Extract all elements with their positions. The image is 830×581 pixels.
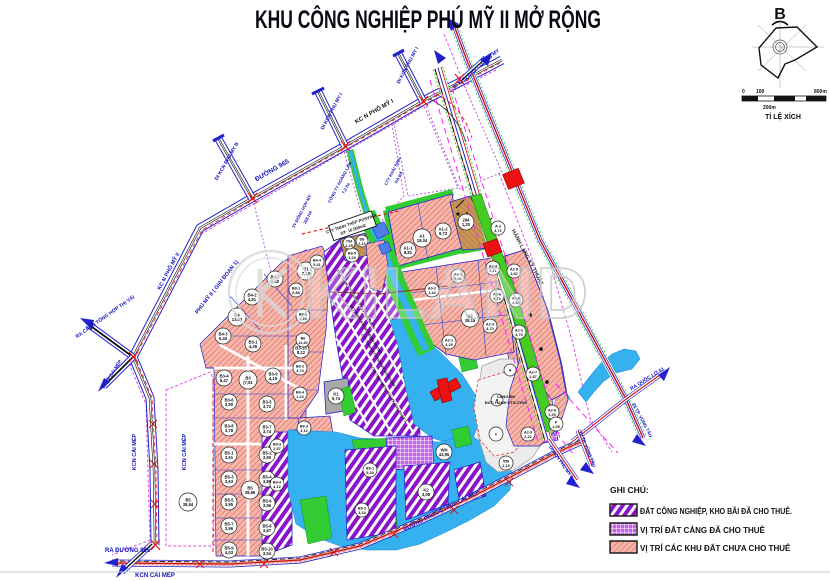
svg-text:B6-3: B6-3 xyxy=(300,424,308,428)
svg-text:RA ĐƯỜNG 965: RA ĐƯỜNG 965 xyxy=(105,546,151,554)
svg-text:100: 100 xyxy=(756,89,765,95)
svg-text:4,36: 4,36 xyxy=(249,344,258,349)
svg-text:3,96: 3,96 xyxy=(225,526,234,531)
svg-text:CẢNG ĐK: CẢNG ĐK xyxy=(497,394,516,399)
svg-text:KCN CÁI MÉP: KCN CÁI MÉP xyxy=(130,433,138,470)
svg-text:0: 0 xyxy=(742,89,745,95)
svg-text:B6: B6 xyxy=(301,336,306,340)
svg-text:558: 558 xyxy=(503,459,509,463)
svg-text:800m: 800m xyxy=(814,89,827,95)
svg-text:1,24: 1,24 xyxy=(296,395,304,399)
svg-text:5,40: 5,40 xyxy=(219,336,228,341)
svg-text:5,28: 5,28 xyxy=(366,471,373,475)
svg-text:4,03: 4,03 xyxy=(225,550,234,555)
svg-text:3,87: 3,87 xyxy=(263,528,272,533)
svg-text:KHU CÔNG NGHIỆP PHÚ MỸ II MỞ: KHU CÔNG NGHIỆP PHÚ MỸ II MỞ RỘNG xyxy=(255,4,601,34)
svg-text:B9-4: B9-4 xyxy=(273,480,282,484)
svg-text:3,90: 3,90 xyxy=(263,455,272,460)
svg-text:B9-2: B9-2 xyxy=(358,506,366,510)
svg-text:3,74: 3,74 xyxy=(263,429,272,434)
svg-text:200m: 200m xyxy=(763,105,776,111)
svg-text:1,25: 1,25 xyxy=(548,413,555,417)
svg-text:3,61: 3,61 xyxy=(225,455,234,460)
svg-text:A2-9: A2-9 xyxy=(524,430,532,434)
svg-text:3,74: 3,74 xyxy=(296,369,304,373)
svg-text:A: A xyxy=(509,369,512,373)
svg-text:B6-2: B6-2 xyxy=(296,364,304,368)
svg-text:6,88: 6,88 xyxy=(292,291,299,295)
svg-text:ĐẤT CÔNG NGHIỆP, KHO BÃI ĐÃ CH: ĐẤT CÔNG NGHIỆP, KHO BÃI ĐÃ CHO THUÊ. xyxy=(640,506,792,516)
svg-text:43,95: 43,95 xyxy=(439,452,450,457)
svg-text:3,95: 3,95 xyxy=(225,502,234,507)
svg-text:KILAND: KILAND xyxy=(306,254,590,334)
svg-text:9,73: 9,73 xyxy=(439,231,448,236)
svg-text:6,74: 6,74 xyxy=(332,396,341,401)
svg-text:6,47: 6,47 xyxy=(220,378,229,383)
svg-text:3,12: 3,12 xyxy=(300,429,307,433)
svg-text:A2-8: A2-8 xyxy=(548,408,556,412)
svg-text:1,05: 1,05 xyxy=(552,425,559,429)
svg-text:4,25: 4,25 xyxy=(445,343,452,347)
svg-text:TỈ LỆ XÍCH: TỈ LỆ XÍCH xyxy=(765,112,801,121)
svg-text:2,87: 2,87 xyxy=(529,375,536,379)
svg-text:11,40: 11,40 xyxy=(298,341,307,345)
svg-text:704: 704 xyxy=(346,239,353,243)
svg-text:3,86: 3,86 xyxy=(263,479,272,484)
svg-text:3,63: 3,63 xyxy=(225,479,234,484)
svg-text:3,72: 3,72 xyxy=(263,404,272,409)
svg-text:8,22: 8,22 xyxy=(297,350,306,355)
svg-text:38,94: 38,94 xyxy=(183,502,194,507)
svg-text:3,96: 3,96 xyxy=(263,503,272,508)
svg-text:4,12: 4,12 xyxy=(273,485,280,489)
svg-text:D8: D8 xyxy=(360,237,365,241)
svg-text:2,19: 2,19 xyxy=(502,464,509,468)
svg-text:1,13: 1,13 xyxy=(358,242,365,246)
svg-text:3,90: 3,90 xyxy=(225,402,234,407)
svg-text:(7,51: (7,51 xyxy=(243,380,253,385)
svg-text:2,57: 2,57 xyxy=(273,447,280,451)
svg-text:A-2: A-2 xyxy=(495,224,501,228)
svg-text:38,86: 38,86 xyxy=(245,490,256,495)
svg-text:A2-7: A2-7 xyxy=(529,370,537,374)
svg-text:4,71: 4,71 xyxy=(494,229,501,233)
svg-text:2,22: 2,22 xyxy=(524,435,531,439)
svg-text:18,04: 18,04 xyxy=(417,238,428,243)
svg-text:VỊ TRÍ ĐẤT CẢNG ĐÃ CHO THUÊ: VỊ TRÍ ĐẤT CẢNG ĐÃ CHO THUÊ xyxy=(640,525,766,535)
svg-text:KCN CÁI MÉP: KCN CÁI MÉP xyxy=(180,433,188,470)
svg-text:4,81: 4,81 xyxy=(248,297,257,302)
svg-text:VỊ TRÍ CÁC KHU ĐẤT CHƯA CHO TH: VỊ TRÍ CÁC KHU ĐẤT CHƯA CHO THUÊ xyxy=(640,543,791,553)
svg-text:2,25: 2,25 xyxy=(345,244,352,248)
svg-text:P: P xyxy=(555,420,558,424)
svg-text:A2-1: A2-1 xyxy=(445,338,453,342)
svg-text:3,18: 3,18 xyxy=(358,511,365,515)
svg-text:3,08: 3,08 xyxy=(422,492,431,497)
svg-text:1,20: 1,20 xyxy=(462,222,471,227)
svg-text:B9-3: B9-3 xyxy=(273,442,281,446)
svg-text:ĐỨC HẠNH UTILITING: ĐỨC HẠNH UTILITING xyxy=(485,400,527,405)
svg-text:GHI CHÚ:: GHI CHÚ: xyxy=(610,484,649,495)
svg-text:4,16: 4,16 xyxy=(269,376,278,381)
svg-text:3,54: 3,54 xyxy=(263,551,272,556)
svg-text:B6-4: B6-4 xyxy=(296,390,305,394)
svg-text:3,78: 3,78 xyxy=(225,428,234,433)
svg-text:B9-1: B9-1 xyxy=(366,466,374,470)
svg-text:C: C xyxy=(495,433,498,437)
svg-text:B8-1: B8-1 xyxy=(292,286,300,290)
